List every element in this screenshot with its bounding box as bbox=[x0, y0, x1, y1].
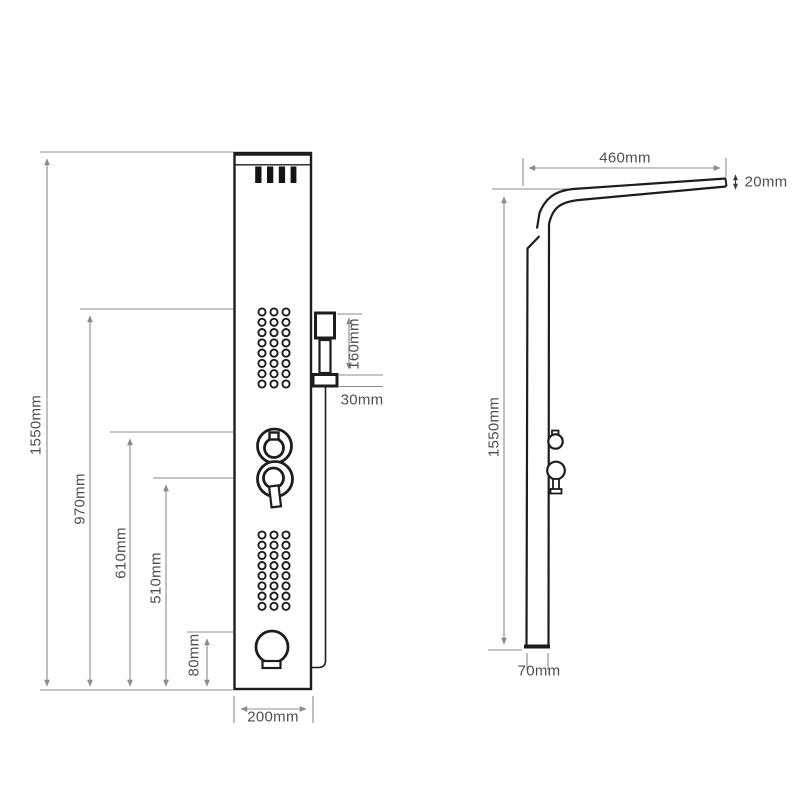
side-arm-thickness-label: 20mm bbox=[745, 174, 788, 191]
front-height-total-label: 1550mm bbox=[28, 395, 45, 455]
hand-shower-handle bbox=[320, 340, 331, 373]
diverter-knob-icon bbox=[258, 429, 292, 463]
hand-shower-hose bbox=[312, 386, 326, 668]
side-height-total-label: 1550mm bbox=[486, 397, 503, 457]
arm-tip bbox=[726, 179, 727, 187]
side-depth-label: 70mm bbox=[518, 663, 561, 680]
front-970-label: 970mm bbox=[72, 473, 89, 525]
front-80-label: 80mm bbox=[186, 634, 203, 677]
shower-panel-dimension-drawing bbox=[0, 0, 800, 800]
front-610-label: 610mm bbox=[113, 527, 130, 579]
hand-shower-head bbox=[316, 313, 335, 338]
front-510-label: 510mm bbox=[148, 552, 165, 604]
arm-inner-and-column-right-edge bbox=[549, 187, 727, 646]
technical-drawing-canvas: 1550mm 970mm 610mm 510mm 80mm 200mm 160m… bbox=[0, 0, 800, 800]
hand-shower-bracket bbox=[313, 375, 337, 387]
front-width-label: 200mm bbox=[247, 709, 299, 726]
hand-shower-icon bbox=[312, 313, 337, 668]
hand-shower-length-label: 160mm bbox=[346, 318, 363, 370]
column-left-edge bbox=[527, 236, 540, 646]
side-profile-icon bbox=[524, 179, 727, 647]
front-view-dimension-lines bbox=[40, 152, 383, 723]
front-view bbox=[40, 152, 383, 723]
side-view-dimension-lines bbox=[488, 158, 726, 670]
side-view-knobs-icon bbox=[547, 431, 565, 494]
side-view bbox=[488, 158, 736, 670]
bracket-height-label: 30mm bbox=[341, 392, 384, 409]
side-arm-length-label: 460mm bbox=[599, 150, 651, 167]
